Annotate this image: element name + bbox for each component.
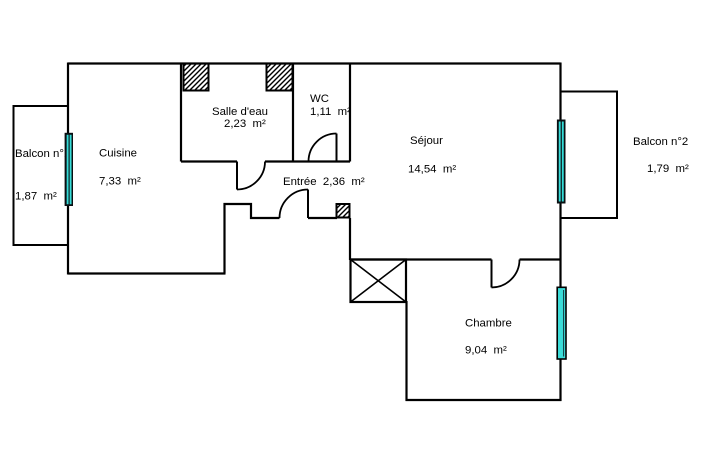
svg-text:7,33 m²: 7,33 m² — [99, 176, 141, 188]
svg-text:14,54 m²: 14,54 m² — [408, 164, 456, 176]
svg-text:Balcon n°2: Balcon n°2 — [633, 136, 688, 148]
svg-text:Entrée 2,36 m²: Entrée 2,36 m² — [283, 176, 365, 188]
svg-text:Séjour: Séjour — [410, 135, 443, 147]
svg-text:2,23 m²: 2,23 m² — [224, 118, 266, 130]
svg-text:1,79 m²: 1,79 m² — [647, 163, 689, 175]
svg-text:WC: WC — [310, 93, 329, 105]
svg-text:Chambre: Chambre — [465, 318, 512, 330]
svg-text:1,87 m²: 1,87 m² — [15, 191, 57, 203]
svg-text:Balcon n°1: Balcon n°1 — [15, 148, 70, 160]
svg-text:9,04 m²: 9,04 m² — [465, 345, 507, 357]
svg-text:Salle d'eau: Salle d'eau — [212, 106, 268, 118]
svg-text:1,11 m²: 1,11 m² — [310, 106, 351, 118]
svg-text:Cuisine: Cuisine — [99, 148, 137, 160]
